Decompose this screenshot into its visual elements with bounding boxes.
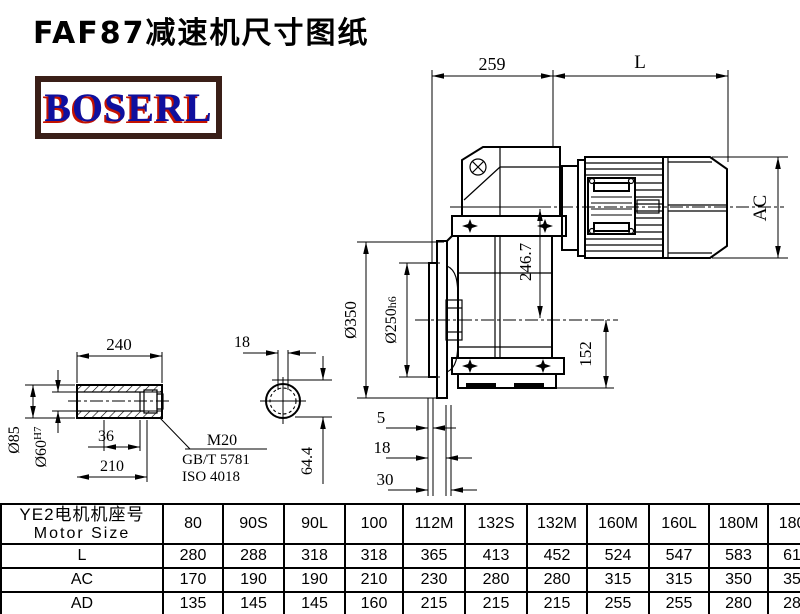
table-cell: 350 <box>768 568 800 592</box>
table-row-AD: AD135145145160215215215255255280280 <box>1 592 800 614</box>
dim-18: 18 <box>374 438 391 457</box>
table-cell: 452 <box>527 544 587 568</box>
row-label: AD <box>1 592 163 614</box>
table-cell: 288 <box>223 544 284 568</box>
table-cell: 170 <box>163 568 223 592</box>
stator-box <box>588 178 635 234</box>
table-cell: 210 <box>345 568 403 592</box>
table-cell: 280 <box>465 568 527 592</box>
table-cell: 160 <box>345 592 403 614</box>
table-cell: 315 <box>649 568 709 592</box>
table-cell: 280 <box>527 568 587 592</box>
table-cell: 547 <box>649 544 709 568</box>
motor-size-header: YE2电机机座号 Motor Size <box>1 504 163 544</box>
column-header-180L: 180L <box>768 504 800 544</box>
motor-size-table: YE2电机机座号 Motor Size 8090S90L100112M132S1… <box>0 503 800 614</box>
dim-AC: AC <box>750 195 771 221</box>
table-cell: 145 <box>284 592 345 614</box>
gearbox-housing <box>452 147 566 389</box>
drawing-sheet: FAF87减速机尺寸图纸 BOSERL <box>0 0 800 614</box>
table-cell: 318 <box>284 544 345 568</box>
table-header-row: YE2电机机座号 Motor Size 8090S90L100112M132S1… <box>1 504 800 544</box>
column-header-160L: 160L <box>649 504 709 544</box>
table-cell: 135 <box>163 592 223 614</box>
table-cell: 145 <box>223 592 284 614</box>
callout-m20: M20 <box>207 432 237 449</box>
table-cell: 315 <box>587 568 649 592</box>
column-header-90S: 90S <box>223 504 284 544</box>
dim-L: L <box>634 52 646 73</box>
dim-30: 30 <box>377 470 394 489</box>
table-cell: 350 <box>709 568 768 592</box>
column-header-90L: 90L <box>284 504 345 544</box>
motor-size-header-en: Motor Size <box>2 525 162 543</box>
dim-spigot: Ø250h6 <box>383 296 400 344</box>
table-cell: 318 <box>345 544 403 568</box>
callout-iso: ISO 4018 <box>182 469 240 485</box>
centerlines <box>68 207 784 424</box>
dim-shaft-od: Ø85 <box>6 426 23 454</box>
column-header-132S: 132S <box>465 504 527 544</box>
dim-bore: Ø60H7 <box>32 426 50 468</box>
table-cell: 215 <box>465 592 527 614</box>
column-header-180M: 180M <box>709 504 768 544</box>
table-cell: 280 <box>768 592 800 614</box>
dim-5: 5 <box>377 408 386 427</box>
table-cell: 190 <box>284 568 345 592</box>
table-cell: 280 <box>163 544 223 568</box>
column-header-112M: 112M <box>403 504 465 544</box>
dim-240: 240 <box>106 335 132 354</box>
table-cell: 255 <box>587 592 649 614</box>
technical-drawing: 259 L AC Ø350 Ø250h6 246.7 152 5 18 30 2… <box>0 0 800 503</box>
callout-gbt: GB/T 5781 <box>182 452 250 468</box>
column-header-160M: 160M <box>587 504 649 544</box>
table-row-L: L280288318318365413452524547583616 <box>1 544 800 568</box>
table-cell: 365 <box>403 544 465 568</box>
row-label: AC <box>1 568 163 592</box>
table-cell: 524 <box>587 544 649 568</box>
table-cell: 280 <box>709 592 768 614</box>
table-cell: 413 <box>465 544 527 568</box>
dim-246-7: 246.7 <box>516 242 535 281</box>
dim-259: 259 <box>479 54 506 74</box>
lifting-eye-mark <box>470 159 486 175</box>
table-row-AC: AC170190190210230280280315315350350 <box>1 568 800 592</box>
dim-210: 210 <box>100 458 124 475</box>
row-label: L <box>1 544 163 568</box>
table-cell: 215 <box>403 592 465 614</box>
dim-64-4: 64.4 <box>299 447 316 475</box>
dim-36: 36 <box>98 428 114 445</box>
dim-152: 152 <box>576 341 595 367</box>
column-header-132M: 132M <box>527 504 587 544</box>
table-cell: 616 <box>768 544 800 568</box>
motor-size-header-cn: YE2电机机座号 <box>2 505 162 525</box>
dim-keyway-18: 18 <box>234 334 250 351</box>
column-header-100: 100 <box>345 504 403 544</box>
table-cell: 215 <box>527 592 587 614</box>
dim-flange-od: Ø350 <box>341 301 360 339</box>
table-cell: 190 <box>223 568 284 592</box>
dimension-lines <box>33 76 778 490</box>
column-header-80: 80 <box>163 504 223 544</box>
table-cell: 583 <box>709 544 768 568</box>
table-cell: 230 <box>403 568 465 592</box>
table-cell: 255 <box>649 592 709 614</box>
